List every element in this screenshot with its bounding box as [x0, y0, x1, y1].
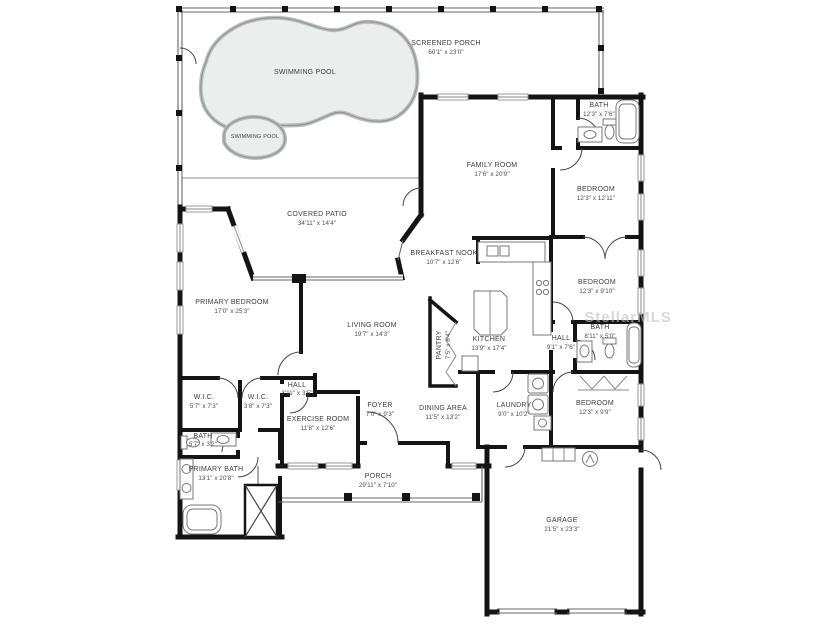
- svg-text:29'11" x 7'10": 29'11" x 7'10": [359, 482, 397, 489]
- svg-text:34'11" x 14'4": 34'11" x 14'4": [298, 220, 336, 227]
- hvac-unit: [542, 448, 575, 461]
- svg-text:3'8" x 7'3": 3'8" x 7'3": [244, 403, 272, 410]
- room-label-foyer: FOYER 7'0" x 9'3": [366, 402, 394, 418]
- svg-text:21'5" x 23'3": 21'5" x 23'3": [544, 526, 579, 533]
- svg-text:9'1" x 7'6": 9'1" x 7'6": [547, 344, 575, 351]
- porch-pillar: [344, 493, 352, 501]
- room-label-bath-upper: BATH 12'3" x 7'6": [583, 102, 615, 118]
- svg-text:12'3" x 9'9": 12'3" x 9'9": [579, 409, 611, 416]
- kitchen-sink: [487, 246, 498, 256]
- svg-text:BEDROOM: BEDROOM: [577, 186, 615, 193]
- room-label-bedroom-2: BEDROOM 12'3" x 9'10": [578, 279, 616, 295]
- svg-text:12'3" x 9'10": 12'3" x 9'10": [579, 288, 614, 295]
- svg-text:3'11" x 3'5": 3'11" x 3'5": [281, 390, 312, 397]
- room-label-wic-1: W.I.C. 5'7" x 7'3": [190, 394, 218, 410]
- svg-text:FAMILY ROOM: FAMILY ROOM: [467, 162, 518, 169]
- svg-text:EXERCISE ROOM: EXERCISE ROOM: [287, 416, 349, 423]
- svg-text:PRIMARY BATH: PRIMARY BATH: [189, 466, 244, 473]
- svg-text:17'6" x 20'9": 17'6" x 20'9": [474, 171, 509, 178]
- room-label-breakfast-nook: BREAKFAST NOOK 10'7" x 12'6": [410, 250, 477, 266]
- room-label-hall-2: HALL 9'1" x 7'6": [547, 335, 575, 351]
- svg-text:FOYER: FOYER: [367, 402, 392, 409]
- room-label-primary-bath: PRIMARY BATH 13'1" x 20'8": [189, 466, 244, 482]
- interior-walls: [180, 97, 641, 537]
- svg-text:19'7" x 14'3": 19'7" x 14'3": [354, 331, 389, 338]
- svg-text:5'7" x 7'3": 5'7" x 7'3": [190, 403, 218, 410]
- porch-pillar: [402, 493, 410, 501]
- svg-text:9'0" x 10'2": 9'0" x 10'2": [498, 411, 530, 418]
- svg-text:HALL: HALL: [288, 382, 307, 389]
- room-label-primary-bedroom: PRIMARY BEDROOM 17'0" x 25'3": [195, 299, 269, 315]
- svg-text:7'5" x 8'4": 7'5" x 8'4": [445, 331, 452, 359]
- room-label-wic-2: W.I.C. 3'8" x 7'3": [244, 394, 272, 410]
- room-label-dining-area: DINING AREA 11'5" x 13'2": [419, 405, 467, 421]
- water-heater: [583, 452, 598, 467]
- svg-text:17'0" x 25'3": 17'0" x 25'3": [214, 308, 249, 315]
- room-label-exercise-room: EXERCISE ROOM 11'8" x 12'6": [287, 416, 349, 432]
- svg-text:LAUNDRY: LAUNDRY: [496, 402, 531, 409]
- sliding-glass-doors: [253, 240, 403, 283]
- room-label-hall-3: HALL 3'11" x 3'5": [281, 382, 312, 397]
- porch-pillar: [472, 493, 480, 501]
- svg-text:SCREENED PORCH: SCREENED PORCH: [411, 40, 481, 47]
- room-label-kitchen: KITCHEN 13'9" x 17'4": [471, 336, 506, 352]
- floor-plan-page: SWIMMING POOL SWIMMING POOL SCREENED POR…: [0, 0, 840, 630]
- svg-text:8'11" x 5'0": 8'11" x 5'0": [584, 333, 615, 340]
- room-label-laundry: LAUNDRY 9'0" x 10'2": [496, 402, 531, 418]
- svg-text:HALL: HALL: [552, 335, 571, 342]
- svg-text:12'3" x 7'6": 12'3" x 7'6": [583, 111, 615, 118]
- svg-text:13'9" x 17'4": 13'9" x 17'4": [471, 345, 506, 352]
- room-label-screened-porch: SCREENED PORCH 60'1" x 23'0": [411, 40, 481, 56]
- room-label-covered-patio: COVERED PATIO 34'11" x 14'4": [287, 211, 347, 227]
- watermark: StellarMLS: [584, 309, 672, 326]
- svg-text:BEDROOM: BEDROOM: [578, 279, 616, 286]
- svg-text:KITCHEN: KITCHEN: [473, 336, 505, 343]
- svg-text:PRIMARY BEDROOM: PRIMARY BEDROOM: [195, 299, 269, 306]
- refrigerator: [462, 356, 478, 371]
- svg-text:BATH: BATH: [589, 102, 608, 109]
- screen-post: [176, 6, 182, 12]
- svg-text:DINING AREA: DINING AREA: [419, 405, 467, 412]
- svg-text:BEDROOM: BEDROOM: [576, 400, 614, 407]
- room-label-living-room: LIVING ROOM 19'7" x 14'3": [347, 322, 396, 338]
- svg-text:11'5" x 13'2": 11'5" x 13'2": [426, 414, 461, 421]
- svg-text:13'1" x 20'8": 13'1" x 20'8": [198, 475, 233, 482]
- svg-text:7'0" x 9'3": 7'0" x 9'3": [366, 411, 394, 418]
- svg-text:COVERED PATIO: COVERED PATIO: [287, 211, 347, 218]
- closet-x: [245, 485, 277, 537]
- svg-text:11'8" x 12'6": 11'8" x 12'6": [301, 425, 336, 432]
- room-label-pantry: PANTRY 7'5" x 8'4": [436, 330, 452, 359]
- toilet: [603, 119, 616, 125]
- fixtures: [180, 100, 641, 537]
- svg-text:12'3" x 12'11": 12'3" x 12'11": [577, 195, 615, 202]
- svg-text:W.I.C.: W.I.C.: [248, 394, 269, 401]
- svg-text:LIVING ROOM: LIVING ROOM: [347, 322, 396, 329]
- svg-text:PANTRY: PANTRY: [436, 330, 443, 359]
- floor-plan: SWIMMING POOL SWIMMING POOL SCREENED POR…: [0, 0, 840, 630]
- svg-text:10'7" x 12'6": 10'7" x 12'6": [426, 259, 461, 266]
- kitchen-counter: [533, 262, 551, 335]
- room-label-spa: SWIMMING POOL: [231, 134, 279, 140]
- pantry-closet: [430, 298, 456, 386]
- room-label-swimming-pool: SWIMMING POOL: [274, 69, 336, 76]
- room-label-bath-2: BATH 8'11" x 5'0": [584, 324, 615, 340]
- svg-text:BREAKFAST NOOK: BREAKFAST NOOK: [410, 250, 477, 257]
- laundry-sink: [534, 416, 551, 430]
- washer: [528, 374, 548, 393]
- door-arcs: [218, 118, 661, 477]
- room-label-bedroom-1: BEDROOM 12'3" x 12'11": [577, 186, 615, 202]
- svg-text:60'1" x 23'0": 60'1" x 23'0": [428, 49, 463, 56]
- svg-text:BATH: BATH: [193, 433, 212, 440]
- room-label-bedroom-3: BEDROOM 12'3" x 9'9": [576, 400, 614, 416]
- closet-bifold-doors: [578, 376, 629, 390]
- room-label-garage: GARAGE 21'5" x 23'3": [544, 517, 579, 533]
- kitchen-island: [474, 291, 507, 335]
- room-label-family-room: FAMILY ROOM 17'6" x 20'9": [467, 162, 518, 178]
- svg-text:PORCH: PORCH: [365, 473, 392, 480]
- room-label-porch: PORCH 29'11" x 7'10": [359, 473, 397, 489]
- svg-text:W.I.C.: W.I.C.: [194, 394, 215, 401]
- svg-text:5'7" x 3'2": 5'7" x 3'2": [189, 441, 217, 448]
- svg-text:GARAGE: GARAGE: [546, 517, 578, 524]
